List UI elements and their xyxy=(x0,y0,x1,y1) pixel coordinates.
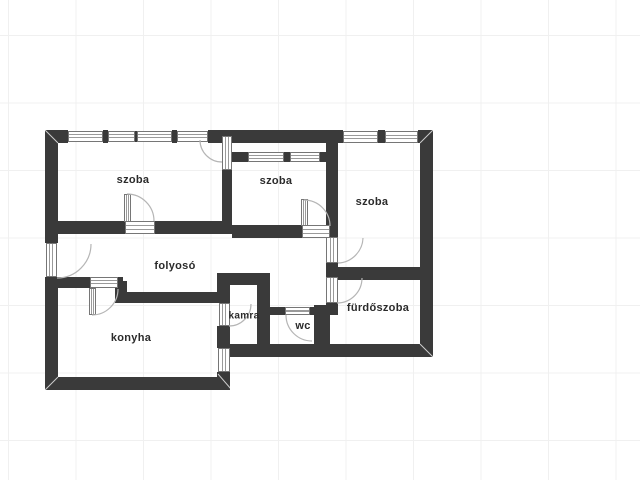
room-label-konyha: konyha xyxy=(111,332,151,344)
wall-wc-furdoszoba xyxy=(314,305,330,345)
window xyxy=(137,131,172,142)
door-leaf-konyha xyxy=(89,288,96,315)
window xyxy=(248,152,284,162)
wall-folyoso-konyha-left xyxy=(58,277,90,288)
room-label-folyoso: folyosó xyxy=(154,260,195,272)
floorplan-canvas: szoba szoba szoba folyosó konyha kamra w… xyxy=(0,0,640,480)
wall-konyha-right-mid xyxy=(217,326,230,348)
window xyxy=(343,131,378,143)
wall-szoba1-bottom-left xyxy=(58,221,125,234)
door-arcs-overlay xyxy=(0,0,640,480)
door-frame-szoba3 xyxy=(326,237,338,263)
room-label-wc: wc xyxy=(295,320,310,332)
wall-szoba2-bottom xyxy=(232,225,302,238)
door-leaf-szoba1 xyxy=(124,194,131,222)
window-mullion xyxy=(378,130,385,143)
wall-left-lower xyxy=(45,277,58,390)
room-label-furdoszoba: fürdőszoba xyxy=(347,302,409,314)
wall-left-upper xyxy=(45,130,58,243)
room-label-szoba-2: szoba xyxy=(260,175,293,187)
door-frame-konyha xyxy=(90,277,118,288)
window xyxy=(108,131,135,142)
door-swing-arc-szoba3 xyxy=(338,238,363,263)
window xyxy=(68,131,103,142)
window xyxy=(385,131,418,143)
wall-bottom-left xyxy=(45,377,230,390)
wall-right xyxy=(420,130,433,357)
door-frame-wc xyxy=(285,307,310,315)
window xyxy=(290,152,320,162)
room-label-kamra: kamra xyxy=(229,311,260,322)
wall-vertical-main-upper xyxy=(326,143,338,237)
wall-konyha-right-lower xyxy=(217,372,230,377)
room-label-szoba-1: szoba xyxy=(117,174,150,186)
door-frame-furdoszoba xyxy=(326,277,338,303)
window xyxy=(177,131,208,142)
door-swing-arc-furdoszoba xyxy=(337,278,362,303)
wall-szoba1-szoba2 xyxy=(222,170,232,225)
door-leaf-szoba2 xyxy=(301,199,308,226)
wall-szoba1-bottom-right xyxy=(155,221,232,234)
wall-szoba2-recess-left xyxy=(232,152,248,162)
room-label-szoba-3: szoba xyxy=(356,196,389,208)
entry-door-frame xyxy=(46,243,57,277)
door-frame-szoba1-szoba2 xyxy=(222,136,232,170)
wall-szoba3-bottom xyxy=(326,267,433,280)
wall-konyha-top xyxy=(117,292,217,303)
door-swing-arc-szoba1 xyxy=(127,194,154,221)
wall-wc-top-left xyxy=(270,307,285,315)
door-frame-szoba1 xyxy=(125,221,155,234)
door-swing-arc-szoba1-szoba2 xyxy=(200,140,222,162)
door-swing-arc-entry xyxy=(57,244,91,278)
window xyxy=(218,348,230,372)
